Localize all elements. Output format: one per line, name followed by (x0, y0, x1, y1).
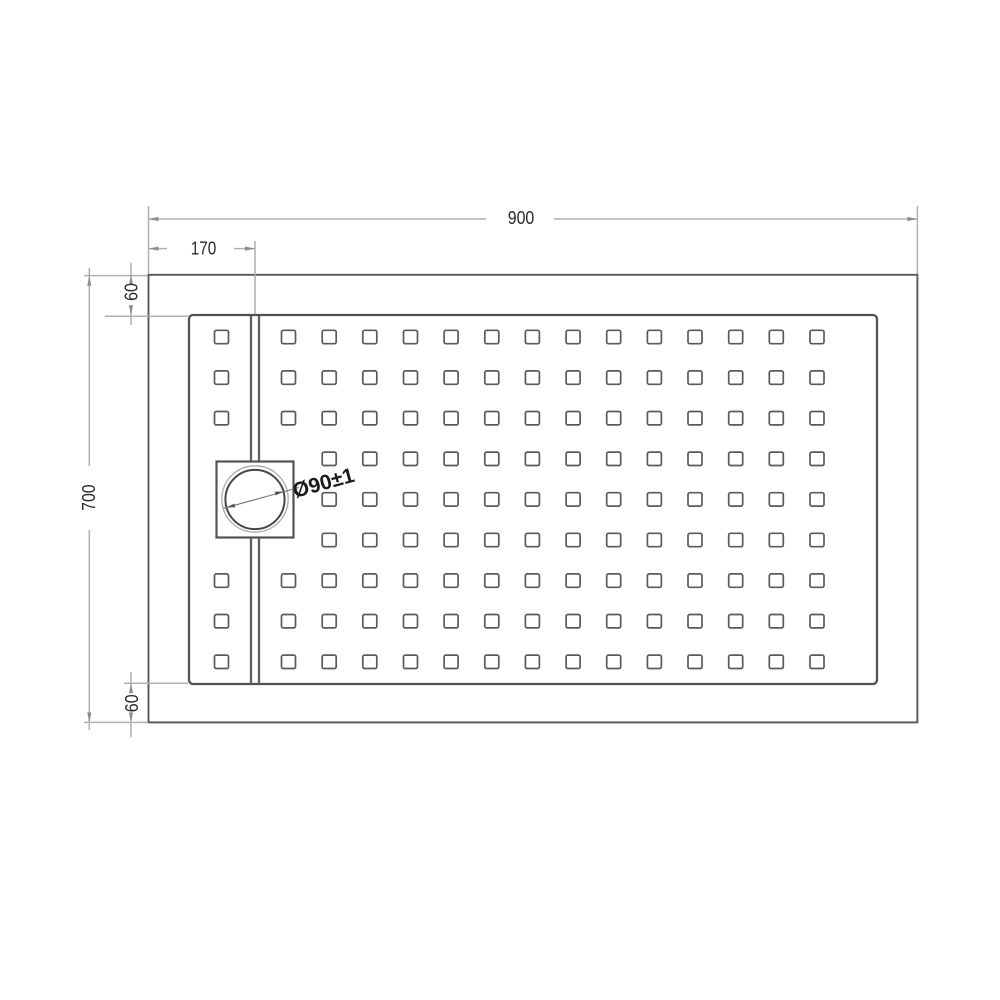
svg-text:60: 60 (122, 694, 142, 712)
svg-text:60: 60 (121, 283, 141, 301)
svg-text:700: 700 (79, 484, 99, 511)
svg-text:900: 900 (508, 208, 535, 228)
svg-text:170: 170 (191, 239, 217, 259)
